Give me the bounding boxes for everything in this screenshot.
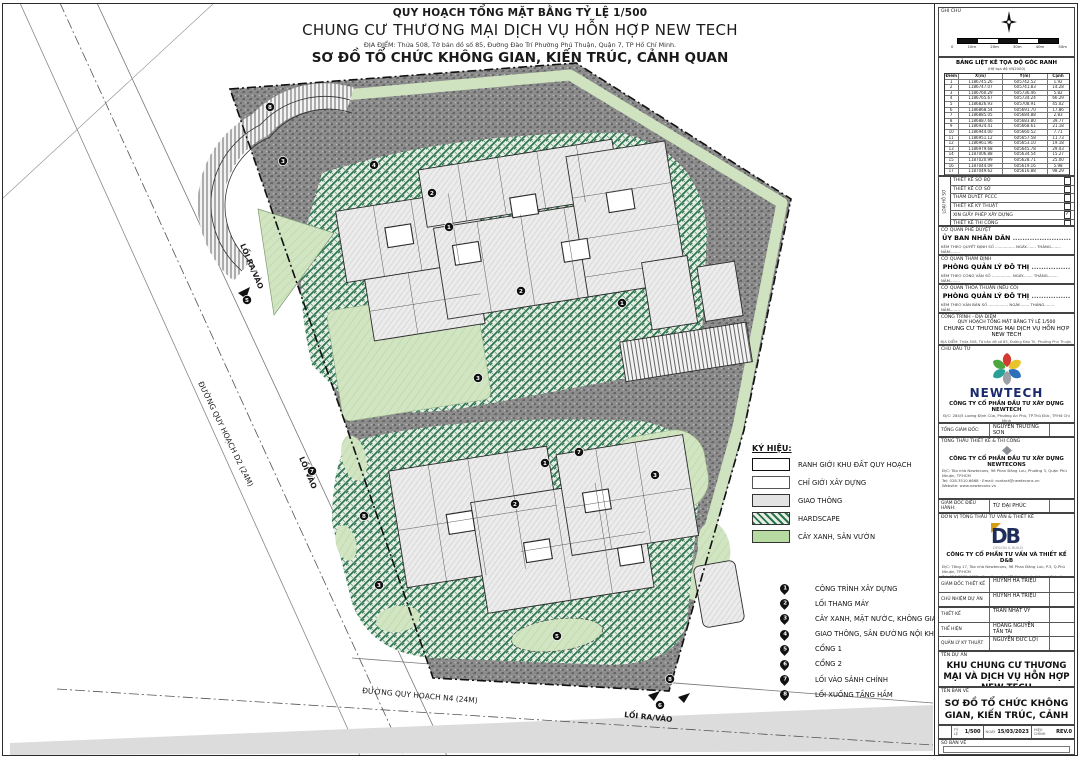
staff-row: THỂ HIỆNHOÀNG NGUYỄN TẤN TÀI (939, 623, 1074, 638)
project-location-line2: CHUNG CƯ THƯƠNG MẠI DỊCH VỤ HỖN HỢP NEW … (939, 326, 1074, 338)
svg-text:3: 3 (281, 159, 285, 165)
label-road-n4: ĐƯỜNG QUY HOẠCH N4 (24M) (362, 686, 478, 705)
revision-cell: HIỆU CHỈNHREV.0 (1031, 726, 1074, 738)
staff-row: CHỦ NHIỆM DỰ ÁNHUỲNH HÀ TRIỆU (939, 593, 1074, 607)
legend-label: RANH GIỚI KHU ĐẤT QUY HOẠCH (798, 461, 912, 469)
callout-label: LỐI VÀO SẢNH CHÍNH (815, 676, 888, 684)
pool-feature (693, 560, 745, 628)
svg-text:6: 6 (658, 703, 662, 709)
project-name-box: TÊN DỰ ÁN KHU CHUNG CƯ THƯƠNG MẠI VÀ DỊC… (938, 651, 1075, 687)
svg-text:1: 1 (620, 301, 624, 307)
swatch-boundary (752, 458, 790, 471)
phase-row: XIN GIẤY PHÉP XÂY DỰNG✓ (950, 211, 1074, 220)
approval-box-1: CƠ QUAN PHÊ DUYỆT ỦY BAN NHÂN DÂN ......… (938, 226, 1075, 255)
approval-note: KÈM THEO VĂN BẢN SỐ ................ NGÀ… (939, 302, 1074, 312)
svg-text:2: 2 (430, 191, 434, 197)
contractor-website: Website: www.newtecons.vn (942, 483, 996, 488)
legend-item: CHỈ GIỚI XÂY DỰNG (752, 476, 932, 489)
staff-row: THIẾT KẾTRẦN NHẬT VỸ (939, 608, 1074, 623)
contractor-address: Đ/C: Tòa nhà Newtecons, 96 Phan Đăng Lưu… (942, 468, 1067, 478)
exec-label: GIÁM ĐỐC ĐIỀU HÀNH: (939, 500, 990, 512)
pin-icon: 6 (778, 658, 791, 671)
svg-text:7: 7 (577, 450, 581, 456)
pin-icon: 3 (778, 613, 791, 626)
coord-table-body: 11186745.26605742.521.9221186747.0760574… (945, 79, 1069, 176)
legend-item: CÂY XANH, SÂN VƯỜN (752, 530, 932, 543)
note-box: GHI CHÚ 010m20m30m40m50m (938, 7, 1075, 57)
swatch-traffic (752, 494, 790, 507)
contractor-company: CÔNG TY CỔ PHẦN ĐẦU TƯ XÂY DỰNG NEWTECON… (939, 456, 1074, 468)
pin-icon: 2 (778, 597, 791, 610)
svg-text:5: 5 (555, 634, 559, 640)
date-cell: NGÀY15/03/2023 (983, 726, 1031, 738)
swatch-hardscape (752, 512, 790, 525)
coord-row: 81186887.66605683.8039.77 (945, 118, 1069, 124)
ceo-name: NGUYỄN TRƯỜNG SƠN (990, 424, 1049, 436)
coord-row: 161187044.09605619.165.98 (945, 163, 1069, 169)
project-name: KHU CHUNG CƯ THƯƠNG MẠI VÀ DỊCH VỤ HỖN H… (939, 661, 1074, 687)
svg-text:5: 5 (245, 298, 249, 304)
callout-label: CỔNG 2 (815, 660, 842, 668)
label-road-d2: ĐƯỜNG QUY HOẠCH D2 (24M) (196, 380, 255, 488)
swatch-build-line (752, 476, 790, 489)
pin-icon: 8 (778, 688, 791, 701)
approval-note: KÈM THEO QUYẾT ĐỊNH SỐ ................ … (939, 244, 1074, 254)
coord-row: 21186747.07605741.8314.28 (945, 84, 1069, 90)
legend: KÝ HIỆU: RANH GIỚI KHU ĐẤT QUY HOẠCH CHỈ… (752, 444, 932, 548)
svg-text:1: 1 (543, 461, 547, 467)
coord-row: 91186924.41605668.6121.18 (945, 123, 1069, 129)
title-line-4: SƠ ĐỒ TỔ CHỨC KHÔNG GIAN, KIẾN TRÚC, CẢN… (170, 50, 870, 67)
legend-label: CÂY XANH, SÂN VƯỜN (798, 533, 875, 541)
callout-label: CỔNG 1 (815, 645, 842, 653)
svg-text:1: 1 (447, 225, 451, 231)
drawing-name-box: TÊN BẢN VẼ SƠ ĐỒ TỔ CHỨC KHÔNG GIAN, KIẾ… (938, 687, 1075, 725)
coord-row: 51186826.93605708.9145.02 (945, 101, 1069, 107)
legend-item: GIAO THÔNG (752, 494, 932, 507)
svg-text:3: 3 (476, 376, 480, 382)
newtech-wordmark: NEWTECH (939, 386, 1074, 400)
svg-text:DB: DB (991, 524, 1020, 548)
phase-row: THIẾT KẾ CƠ SỞ (950, 186, 1074, 195)
coord-row: 71186885.05605684.882.83 (945, 112, 1069, 118)
pin-icon: 5 (778, 643, 791, 656)
coord-row: 101186944.00605660.527.71 (945, 129, 1069, 135)
approval-note: KÈM THEO CÔNG VĂN SỐ ................ NG… (939, 273, 1074, 283)
checkbox-icon-checked: ✓ (1064, 211, 1072, 219)
title-line-2: CHUNG CƯ THƯƠNG MẠI DỊCH VỤ HỖN HỢP NEW … (170, 21, 870, 40)
coord-row: 111186951.12605657.5811.73 (945, 135, 1069, 141)
svg-text:8: 8 (268, 105, 272, 111)
approval-agency: PHÒNG QUẢN LÝ ĐÔ THỊ ................ (939, 263, 1074, 271)
pin-icon: 4 (778, 628, 791, 641)
contractor-header: TỔNG THẦU THIẾT KẾ & THI CÔNG (939, 438, 1074, 444)
phase-row: THIẾT KẾ SƠ BỘ (950, 177, 1074, 186)
svg-text:2: 2 (519, 289, 523, 295)
checkbox-icon (1064, 194, 1072, 202)
investor-company: CÔNG TY CỔ PHẦN ĐẦU TƯ XÂY DỰNG NEWTECH (939, 401, 1074, 413)
staff-table-2: THIẾT KẾTRẦN NHẬT VỸ THỂ HIỆNHOÀNG NGUYỄ… (938, 607, 1075, 651)
coord-row: 41186765.67605734.2466.29 (945, 95, 1069, 101)
callout-label: LỐI THANG MÁY (815, 600, 869, 608)
drawing-name: SƠ ĐỒ TỔ CHỨC KHÔNG GIAN, KIẾN TRÚC, CẢN… (939, 698, 1074, 725)
coord-row: 31186760.29605736.465.82 (945, 90, 1069, 96)
scale-bar-labels: 010m20m30m40m50m (951, 44, 1067, 49)
investor-address: Đ/C: 284/5 Lương Định Của, Phường An Phú… (939, 413, 1074, 423)
consultant-company: CÔNG TY CỔ PHẦN TƯ VẤN VÀ THIẾT KẾ D&B (939, 552, 1074, 564)
coord-row: 141187006.88605634.5415.27 (945, 151, 1069, 157)
coord-row: 61186868.54605691.7017.86 (945, 107, 1069, 113)
coord-table-header: Điểm X(m) Y(m) Cạnh (945, 74, 1069, 79)
approval-agency: PHÒNG QUẢN LÝ ĐÔ THỊ ................ (939, 292, 1074, 300)
staff-row: GIÁM ĐỐC THIẾT KẾHUỲNH HÀ TRIỆU (939, 578, 1074, 593)
approval-agency: ỦY BAN NHÂN DÂN ........................ (939, 234, 1074, 242)
staff-table-1: GIÁM ĐỐC THIẾT KẾHUỲNH HÀ TRIỆU CHỦ NHIỆ… (938, 577, 1075, 607)
coord-table: Điểm X(m) Y(m) Cạnh 11186745.26605742.52… (944, 73, 1070, 176)
svg-text:8: 8 (362, 514, 366, 520)
callout-label: CÔNG TRÌNH XÂY DỰNG (815, 585, 897, 593)
checkbox-icon (1064, 177, 1072, 185)
svg-text:8: 8 (668, 677, 672, 683)
svg-text:2: 2 (513, 502, 517, 508)
approval-header: CƠ QUAN PHÊ DUYỆT (939, 227, 1074, 233)
phase-checklist: LOẠI HỒ SƠ THIẾT KẾ SƠ BỘ THIẾT KẾ CƠ SỞ… (938, 176, 1075, 226)
meta-row: TỶ LỆ1/500 NGÀY15/03/2023 HIỆU CHỈNHREV.… (938, 725, 1075, 739)
svg-text:3: 3 (377, 583, 381, 589)
db-tagline: DESIGN & BUILD (993, 546, 1023, 550)
ceo-row: TỔNG GIÁM ĐỐC: NGUYỄN TRƯỜNG SƠN (938, 423, 1075, 437)
investor-box: CHỦ ĐẦU TƯ NEWTECH CÔNG TY CỔ PHẦN ĐẦU T… (938, 345, 1075, 423)
exec-name: TỪ ĐẠI PHÚC (990, 503, 1049, 509)
phase-row: THIẾT KẾ KỸ THUẬT (950, 203, 1074, 212)
coord-row: 11186745.26605742.521.92 (945, 79, 1069, 85)
legend-item: HARDSCAPE (752, 512, 932, 525)
title-line-3: ĐỊA ĐIỂM: Thửa 508, Tờ bản đồ số 85, Đườ… (170, 41, 870, 49)
svg-text:7: 7 (310, 469, 314, 475)
legend-label: CHỈ GIỚI XÂY DỰNG (798, 479, 866, 487)
svg-text:4: 4 (372, 163, 376, 169)
coordinate-table-box: BẢNG LIỆT KÊ TỌA ĐỘ GÓC RANH (Hệ tọa độ … (938, 57, 1075, 176)
coord-row: 171187049.62605616.8898.29 (945, 168, 1069, 174)
checkbox-icon (1064, 203, 1072, 211)
legend-title: KÝ HIỆU: (752, 444, 932, 453)
contractor-box: TỔNG THẦU THIẾT KẾ & THI CÔNG CÔNG TY CỔ… (938, 437, 1075, 499)
project-location-box: CÔNG TRÌNH - ĐỊA ĐIỂM QUY HOẠCH TỔNG MẶT… (938, 313, 1075, 345)
project-location-line1: QUY HOẠCH TỔNG MẶT BẰNG TỶ LỆ 1/500 (939, 320, 1074, 325)
legend-label: HARDSCAPE (798, 515, 840, 523)
approval-box-3: CƠ QUAN THỎA THUẬN (NẾU CÓ) PHÒNG QUẢN L… (938, 284, 1075, 313)
swatch-green (752, 530, 790, 543)
title-block: QUY HOẠCH TỔNG MẶT BẰNG TỶ LỆ 1/500 CHUN… (170, 7, 870, 67)
svg-text:3: 3 (653, 473, 657, 479)
phase-row: THẨM DUYỆT PCCC (950, 194, 1074, 203)
db-logo-icon: DB DESIGN & BUILD (981, 521, 1033, 551)
checkbox-icon (1064, 186, 1072, 194)
consultant-address: Đ/C: Tầng 17, Tòa nhà Newtecons, 96 Phan… (942, 564, 1065, 574)
consultant-header: ĐƠN VỊ TỔNG THẦU TƯ VẤN & THIẾT KẾ (939, 514, 1074, 520)
title-line-1: QUY HOẠCH TỔNG MẶT BẰNG TỶ LỆ 1/500 (170, 7, 870, 20)
approval-header: CƠ QUAN THẨM ĐỊNH (939, 256, 1074, 262)
coord-table-subtitle: (Hệ tọa độ VN2000) (939, 66, 1074, 71)
north-arrow-icon (997, 10, 1021, 34)
coord-row: 151187020.99605628.7125.00 (945, 157, 1069, 163)
drawing-name-label: TÊN BẢN VẼ (939, 688, 1074, 694)
callout-label: GIAO THÔNG, SÂN ĐƯỜNG NỘI KHU (815, 630, 939, 638)
pin-icon: 7 (778, 673, 791, 686)
drawing-number-field (943, 746, 1070, 753)
callout-label: LỐI XUỐNG TẦNG HẦM (815, 691, 893, 699)
pin-icon: 1 (778, 582, 791, 595)
approval-header: CƠ QUAN THỎA THUẬN (NẾU CÓ) (939, 285, 1074, 291)
project-name-label: TÊN DỰ ÁN (939, 652, 1074, 658)
coord-row: 121186961.96605653.1019.18 (945, 140, 1069, 146)
exec-row: GIÁM ĐỐC ĐIỀU HÀNH: TỪ ĐẠI PHÚC (938, 499, 1075, 513)
scale-cell: TỶ LỆ1/500 (951, 726, 983, 738)
coord-row: 131186979.68605645.7829.43 (945, 146, 1069, 152)
consultant-box: ĐƠN VỊ TỔNG THẦU TƯ VẤN & THIẾT KẾ DB DE… (938, 513, 1075, 577)
drawing-number-box: SỐ BẢN VẼ (938, 739, 1075, 755)
legend-label: GIAO THÔNG (798, 497, 842, 505)
drawing-sheet: LỐI RA/VÀO ĐƯỜNG QUY HOẠCH D2 (24M) LỐI … (0, 0, 1080, 759)
approval-box-2: CƠ QUAN THẨM ĐỊNH PHÒNG QUẢN LÝ ĐÔ THỊ .… (938, 255, 1075, 284)
ceo-label: TỔNG GIÁM ĐỐC: (939, 424, 990, 436)
legend-item: RANH GIỚI KHU ĐẤT QUY HOẠCH (752, 458, 932, 471)
newtech-logo-icon (987, 352, 1027, 386)
newtecons-logo-icon (1002, 446, 1012, 455)
title-strip-panel: GHI CHÚ 010m20m30m40m50m BẢNG LIỆT KÊ TỌ… (934, 3, 1078, 756)
staff-row: QUẢN LÝ KỸ THUẬTNGUYỄN ĐỨC LỢI (939, 637, 1074, 651)
